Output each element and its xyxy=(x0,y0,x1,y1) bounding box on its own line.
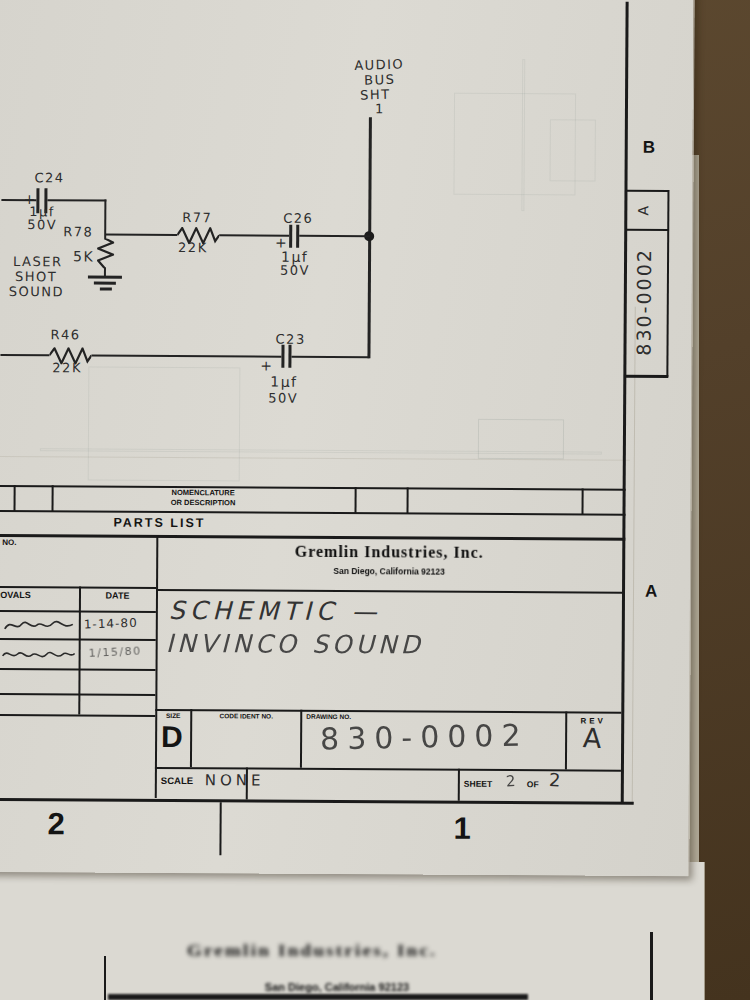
show-through xyxy=(88,366,241,481)
capacitor-C23-plate xyxy=(281,345,284,368)
capacitor-C26-plate xyxy=(289,225,292,248)
zone-number: 2 xyxy=(48,808,65,839)
capacitor-C26-ref: C26 xyxy=(283,212,313,225)
ground-symbol xyxy=(88,275,122,278)
company-address: San Diego, California 92123 xyxy=(156,566,622,577)
approval-date: 1-14-80 xyxy=(84,617,138,631)
parts-list-title: PARTS LIST xyxy=(0,516,319,530)
audio-bus-label: 1 xyxy=(375,102,385,115)
zone-number: 1 xyxy=(453,813,470,844)
size-value: D xyxy=(161,722,183,752)
parts-list-column-header: NOMENCLATURE xyxy=(52,488,355,497)
scale-label: SCALE xyxy=(161,776,193,786)
drawing-title-line2: INVINCO SOUND xyxy=(166,631,424,658)
resistor-R78-ref: R78 xyxy=(63,225,93,238)
resistor-R77-ref: R77 xyxy=(182,211,212,224)
form-line xyxy=(14,485,16,511)
form-line xyxy=(156,589,622,594)
resistor-R78-symbol xyxy=(97,239,114,269)
ground-symbol xyxy=(94,281,116,284)
form-line xyxy=(0,586,156,589)
capacitor-C26-voltage: 50V xyxy=(280,264,310,277)
border-line xyxy=(0,798,634,805)
capacitor-C24-ref: C24 xyxy=(35,171,65,184)
signal-label: SOUND xyxy=(9,285,64,298)
ground-symbol xyxy=(100,288,112,291)
size-label: SIZE xyxy=(155,713,191,720)
audio-bus-label: BUS xyxy=(364,73,396,87)
under-sheet-border-line xyxy=(104,956,106,1000)
form-line xyxy=(354,487,356,513)
wire xyxy=(105,234,177,236)
audio-bus-label: SHT xyxy=(360,88,391,102)
show-through xyxy=(550,119,596,181)
sheet-label: SHEET xyxy=(464,780,492,789)
capacitor-C23-value: 1µf xyxy=(270,375,297,389)
no-label: NO. xyxy=(2,539,16,547)
under-sheet-border-line xyxy=(108,994,528,1000)
edge-rev: A xyxy=(636,195,656,225)
edge-box-line xyxy=(666,190,669,377)
capacitor-C23-ref: C23 xyxy=(276,333,306,346)
wire xyxy=(91,354,281,357)
wire xyxy=(0,354,49,356)
edge-box-line xyxy=(626,190,668,192)
form-line xyxy=(581,488,583,514)
date-label: DATE xyxy=(79,591,156,600)
zone-tick xyxy=(219,802,221,855)
resistor-R78-value: 5K xyxy=(73,249,94,263)
drawing-no-label: DRAWING NO. xyxy=(306,714,351,721)
capacitor-C24-voltage: 50V xyxy=(27,218,57,231)
form-line xyxy=(458,769,460,801)
form-line xyxy=(406,487,408,513)
form-line xyxy=(0,510,625,515)
rev-value: A xyxy=(582,724,604,752)
code-ident-label: CODE IDENT NO. xyxy=(192,713,300,720)
under-sheet-border-line xyxy=(650,932,653,1000)
signal-label: SHOT xyxy=(15,270,57,283)
fold-crease xyxy=(632,307,636,805)
resistor-R77-value: 22K xyxy=(178,241,208,254)
approval-date: 1/15/80 xyxy=(88,645,141,658)
company-name: Gremlin Industries, Inc. xyxy=(156,543,622,562)
wire xyxy=(47,199,106,201)
under-sheet-company: Gremlin Industries, Inc. xyxy=(127,942,497,959)
zone-letter: A xyxy=(645,583,657,600)
approvals-label: APPROVALS xyxy=(0,591,55,601)
audio-bus-label: AUDIO xyxy=(354,58,404,72)
zone-letter: B xyxy=(643,139,655,156)
scale-value: NONE xyxy=(205,773,265,788)
sheet-of-label: OF xyxy=(527,780,539,789)
drawing-title-line1: SCHEMTIC — xyxy=(169,598,382,624)
wire xyxy=(291,356,369,358)
under-sheet: Gremlin Industries, Inc. San Diego, Cali… xyxy=(0,862,704,1000)
under-sheet-address: San Diego, California 92123 xyxy=(217,982,457,993)
resistor-R46-value: 22K xyxy=(52,361,82,374)
capacitor-C23-voltage: 50V xyxy=(268,392,298,405)
form-line xyxy=(0,534,625,540)
edge-box-line xyxy=(625,375,668,378)
schematic-sheet: AUDIO BUS SHT 1 C24 + 1µf 50V R78 5K LAS… xyxy=(0,0,695,876)
parts-list-column-header: OR DESCRIPTION xyxy=(52,498,355,507)
resistor-R46-ref: R46 xyxy=(51,328,81,341)
wire xyxy=(299,235,370,237)
drawing-no-value: 830-0002 xyxy=(320,720,529,754)
signal-label: LASER xyxy=(13,255,63,268)
capacitor-C26-polarity: + xyxy=(275,236,288,250)
border-line xyxy=(621,2,628,804)
sheet-total: 2 xyxy=(549,771,563,790)
capacitor-C23-polarity: + xyxy=(260,359,273,373)
form-line xyxy=(0,714,155,716)
signature xyxy=(3,615,75,635)
sheet-value: 2 xyxy=(505,774,517,790)
edge-drawing-no: 830-0002 xyxy=(634,232,657,372)
form-line xyxy=(78,586,80,714)
edge-box-line xyxy=(626,229,668,231)
signature xyxy=(1,644,77,664)
photo-of-schematic-sheet: Gremlin Industries, Inc. San Diego, Cali… xyxy=(0,0,750,1000)
